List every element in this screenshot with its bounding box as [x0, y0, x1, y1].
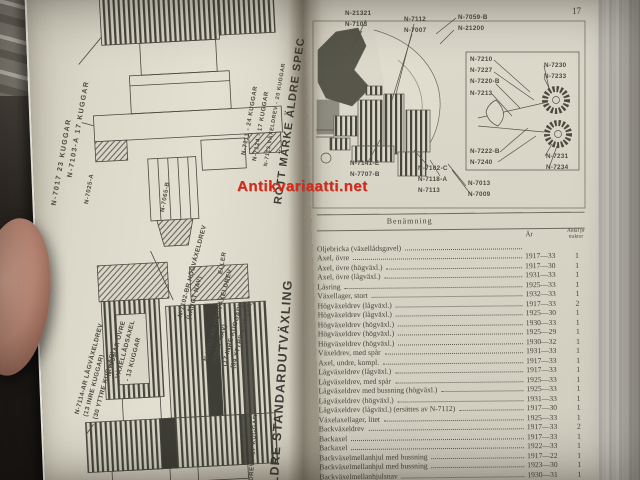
- dot-leader: [395, 381, 523, 383]
- part-name: Låsring: [317, 282, 340, 291]
- part-qty: 1: [570, 384, 586, 393]
- part-name: Backväxelmellanhjul med bussning: [319, 452, 427, 462]
- part-name: Växelaxellager, litet: [319, 414, 380, 424]
- part-name: Oljebricka (växellådsgavel): [317, 243, 401, 253]
- part-qty: 1: [571, 460, 587, 469]
- part-years: 1917—33: [526, 355, 570, 364]
- part-name: Lågväxeldrev med bussning (högväxl.): [318, 385, 437, 395]
- part-years: 1925—29: [526, 327, 570, 336]
- part-years: 1922—33: [527, 441, 571, 450]
- part-name: Backväxelmellanhjul med bussning: [319, 461, 427, 471]
- part-name: Växellager, stort: [317, 291, 367, 301]
- part-years: 1932—33: [525, 289, 569, 298]
- part-qty: 1: [570, 336, 586, 345]
- column-header-benamning: Benämning: [387, 216, 433, 225]
- part-name: Lågväxeldrev (lågväxl.): [318, 367, 391, 377]
- part-qty: 1: [571, 431, 587, 440]
- part-qty: 1: [570, 355, 586, 364]
- part-name: Högväxeldrev (högväxl.): [318, 338, 394, 348]
- part-years: 1917—33: [526, 298, 570, 307]
- part-years: 1931—33: [526, 393, 570, 402]
- part-years: 1917—30: [527, 403, 571, 412]
- part-years: 1931—33: [526, 346, 570, 355]
- part-years: 1925—33: [526, 384, 570, 393]
- part-years: 1923—30: [527, 460, 571, 469]
- part-qty: 1: [569, 251, 585, 260]
- part-qty: 1: [570, 327, 586, 336]
- part-years: 1917—22: [527, 450, 571, 459]
- part-years: 1917—33: [526, 365, 570, 374]
- label-inset-bottom-right: N-7231 N-7234: [546, 151, 568, 173]
- part-name: Axel, undre, kompl.: [318, 357, 379, 367]
- column-header-ar: År: [525, 230, 532, 238]
- part-qty: 1: [571, 469, 587, 478]
- part-years: 1931—33: [525, 270, 569, 279]
- part-qty: 1: [570, 308, 586, 317]
- dot-leader: [387, 267, 523, 269]
- part-years: 1925—33: [526, 374, 570, 383]
- part-qty: 1: [570, 393, 586, 402]
- dot-leader: [398, 324, 523, 326]
- dot-leader: [432, 466, 525, 468]
- part-qty: 1: [569, 279, 585, 288]
- label-bottom-mid: N-7102-C N-7118-A N-7113: [418, 163, 448, 197]
- part-name: Lågväxeldrev (högväxl.): [319, 395, 394, 405]
- label-bottom-right: N-7013 N-7009: [468, 178, 490, 200]
- part-name: Högväxeldrev (högväxl.): [318, 319, 394, 329]
- dot-leader: [383, 362, 523, 364]
- dot-leader: [398, 333, 523, 335]
- part-years: 1925—30: [526, 308, 570, 317]
- book-photo: N-7017 23 KUGGAR N-7103-A 17 KUGGAR N-70…: [0, 0, 640, 480]
- part-qty: 1: [570, 365, 586, 374]
- label-inset-top-left: N-7210 N-7227 N-7220-B N-7213: [470, 54, 500, 99]
- part-name: Backaxel: [319, 443, 347, 452]
- dot-leader: [372, 295, 523, 298]
- part-name: Axel, övre: [317, 253, 349, 262]
- label-top-right: N-7059-B N-21200: [458, 12, 488, 34]
- part-years: 1925—33: [527, 412, 571, 421]
- part-qty: 1: [569, 260, 585, 269]
- parts-table: Benämning År Antal pr traktor Oljebricka…: [317, 212, 588, 480]
- part-qty: 2: [571, 422, 587, 431]
- part-name: Backväxelmellanhjulsnav: [319, 471, 398, 480]
- watermark: Antikvariaatti.net: [237, 178, 368, 195]
- part-qty: 1: [569, 270, 585, 279]
- dot-leader: [405, 248, 522, 250]
- part-qty: 1: [571, 441, 587, 450]
- part-name: Högväxeldrev (lågväxl.): [318, 300, 392, 310]
- page-number: 17: [572, 6, 581, 16]
- table-rows: Oljebricka (växellådsgavel) Axel, övre 1…: [317, 241, 587, 480]
- part-name: Växeldrev, med spår: [318, 348, 381, 358]
- part-qty: 1: [571, 412, 587, 421]
- part-qty: 1: [570, 374, 586, 383]
- part-years: 1930—33: [526, 317, 570, 326]
- dot-leader: [459, 409, 523, 411]
- part-name: Högväxeldrev (lågväxl.): [318, 310, 392, 320]
- part-name: Högväxeldrev (högväxl.): [318, 329, 394, 339]
- dot-leader: [384, 419, 524, 421]
- dot-leader: [402, 476, 525, 478]
- part-years: 1925—33: [525, 279, 569, 288]
- part-name: Lågväxeldrev (lågväxl.) (ersättes av N-7…: [319, 404, 456, 414]
- dot-leader: [396, 314, 523, 316]
- label-top-left: N-21321 N-7103: [345, 8, 371, 30]
- dot-leader: [396, 305, 523, 307]
- dot-leader: [385, 352, 523, 354]
- column-header-antal: Antal pr traktor: [567, 229, 585, 240]
- part-name: Axel, övre (högväxl.): [317, 262, 382, 272]
- part-qty: 1: [571, 450, 587, 459]
- dot-leader: [398, 400, 524, 402]
- part-name: Lågväxeldrev, med spår: [318, 376, 391, 386]
- part-qty: 1: [569, 289, 585, 298]
- part-years: 1930—32: [526, 336, 570, 345]
- dot-leader: [398, 343, 523, 345]
- part-name: Backaxel: [319, 434, 347, 443]
- part-years: 1917—33: [527, 422, 571, 431]
- part-name: Axel, övre (lågväxl.): [317, 272, 380, 282]
- part-years: 1917—30: [525, 260, 569, 269]
- dot-leader: [395, 371, 523, 373]
- label-inset-top-right: N-7230 N-7233: [544, 60, 566, 82]
- dot-leader: [432, 457, 525, 459]
- part-qty: 2: [570, 298, 586, 307]
- part-qty: 1: [570, 317, 586, 326]
- part-years: 1917—33: [525, 251, 569, 260]
- part-name: Backväxeldrev: [319, 424, 365, 433]
- dot-leader: [368, 428, 523, 431]
- label-top-mid: N-7112 N-7007: [404, 14, 426, 36]
- part-years: 1917—33: [527, 431, 571, 440]
- dot-leader: [385, 276, 523, 278]
- dot-leader: [441, 390, 523, 392]
- part-qty: 1: [571, 403, 587, 412]
- part-qty: 1: [570, 346, 586, 355]
- label-inset-bottom-left: N-7222-B N-7240: [470, 146, 500, 168]
- part-years: 1930—31: [527, 469, 571, 478]
